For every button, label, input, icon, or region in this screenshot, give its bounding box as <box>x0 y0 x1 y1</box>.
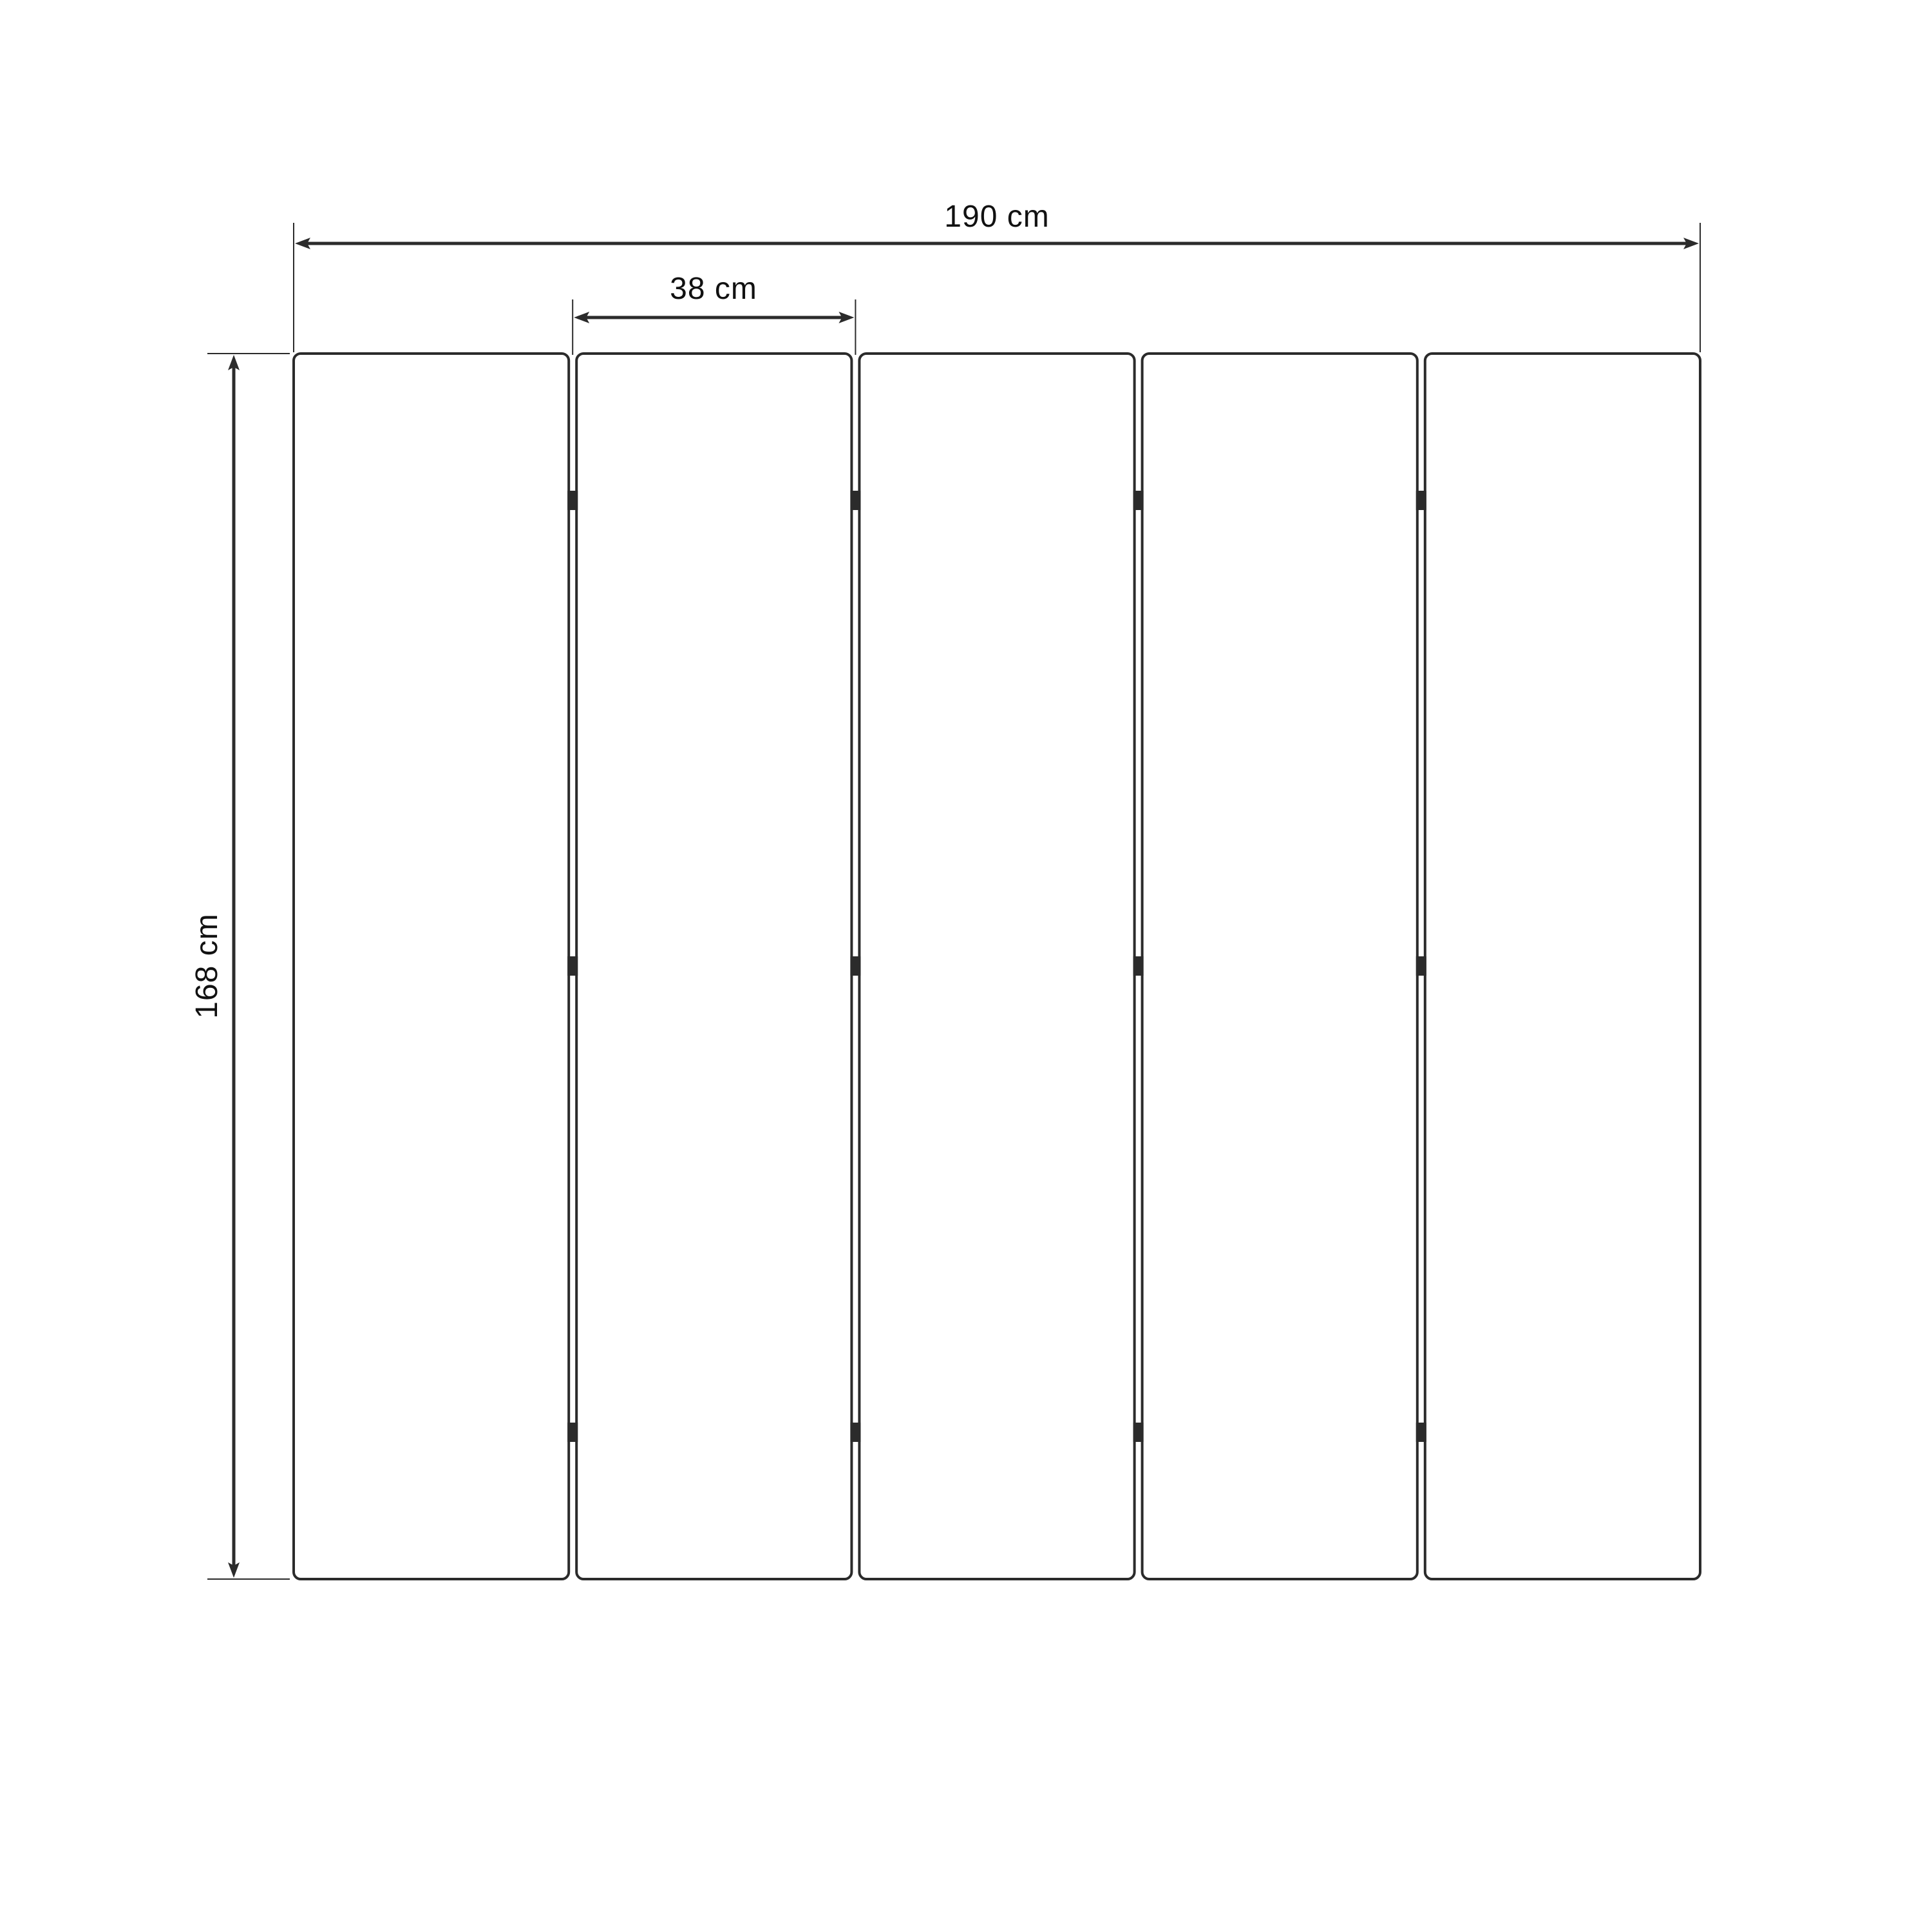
hinge-icon <box>1133 956 1144 976</box>
panel-5 <box>1425 354 1700 1579</box>
panel-width-label: 38 cm <box>670 272 757 306</box>
panel-3 <box>859 354 1134 1579</box>
dimension-diagram: 190 cm 38 cm 168 cm <box>0 0 1932 1932</box>
hinge-icon <box>567 1423 578 1442</box>
hinge-icon <box>850 491 860 510</box>
hinge-icon <box>1416 956 1426 976</box>
hinge-icon <box>850 956 860 976</box>
hinge-icon <box>1416 491 1426 510</box>
panel-4 <box>1142 354 1417 1579</box>
hinge-icon <box>567 491 578 510</box>
dimension-height: 168 cm <box>190 354 290 1579</box>
hinge-icon <box>1133 1423 1144 1442</box>
panel-1 <box>294 354 569 1579</box>
hinge-icon <box>850 1423 860 1442</box>
height-label: 168 cm <box>190 913 224 1018</box>
hinge-icon <box>1133 491 1144 510</box>
panels-group <box>294 354 1700 1579</box>
folding-screen-drawing: 190 cm 38 cm 168 cm <box>0 0 1932 1932</box>
panel-2 <box>576 354 851 1579</box>
dimension-panel-width: 38 cm <box>573 272 855 355</box>
hinge-icon <box>567 956 578 976</box>
hinge-icon <box>1416 1423 1426 1442</box>
total-width-label: 190 cm <box>944 200 1049 234</box>
dimension-total-width: 190 cm <box>294 200 1700 352</box>
